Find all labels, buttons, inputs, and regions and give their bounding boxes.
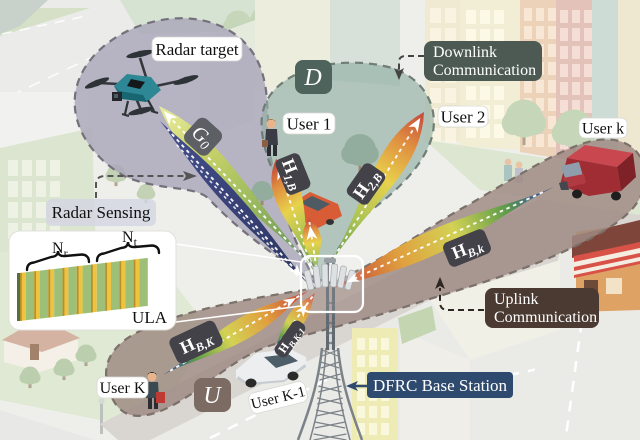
svg-text:Radar target: Radar target [155,40,239,59]
svg-text:ULA: ULA [132,308,168,327]
svg-text:U: U [203,383,222,409]
svg-text:Communication: Communication [494,309,597,326]
svg-text:User K: User K [100,380,146,397]
svg-text:DFRC Base Station: DFRC Base Station [373,376,508,395]
svg-text:Communication: Communication [433,62,536,79]
svg-text:Downlink: Downlink [433,44,497,61]
svg-text:Uplink: Uplink [494,291,538,308]
svg-text:D: D [303,65,321,91]
svg-text:User 2: User 2 [441,107,486,126]
svg-text:User k: User k [582,120,624,137]
svg-text:Radar Sensing: Radar Sensing [52,203,151,222]
svg-text:User 1: User 1 [287,114,332,133]
